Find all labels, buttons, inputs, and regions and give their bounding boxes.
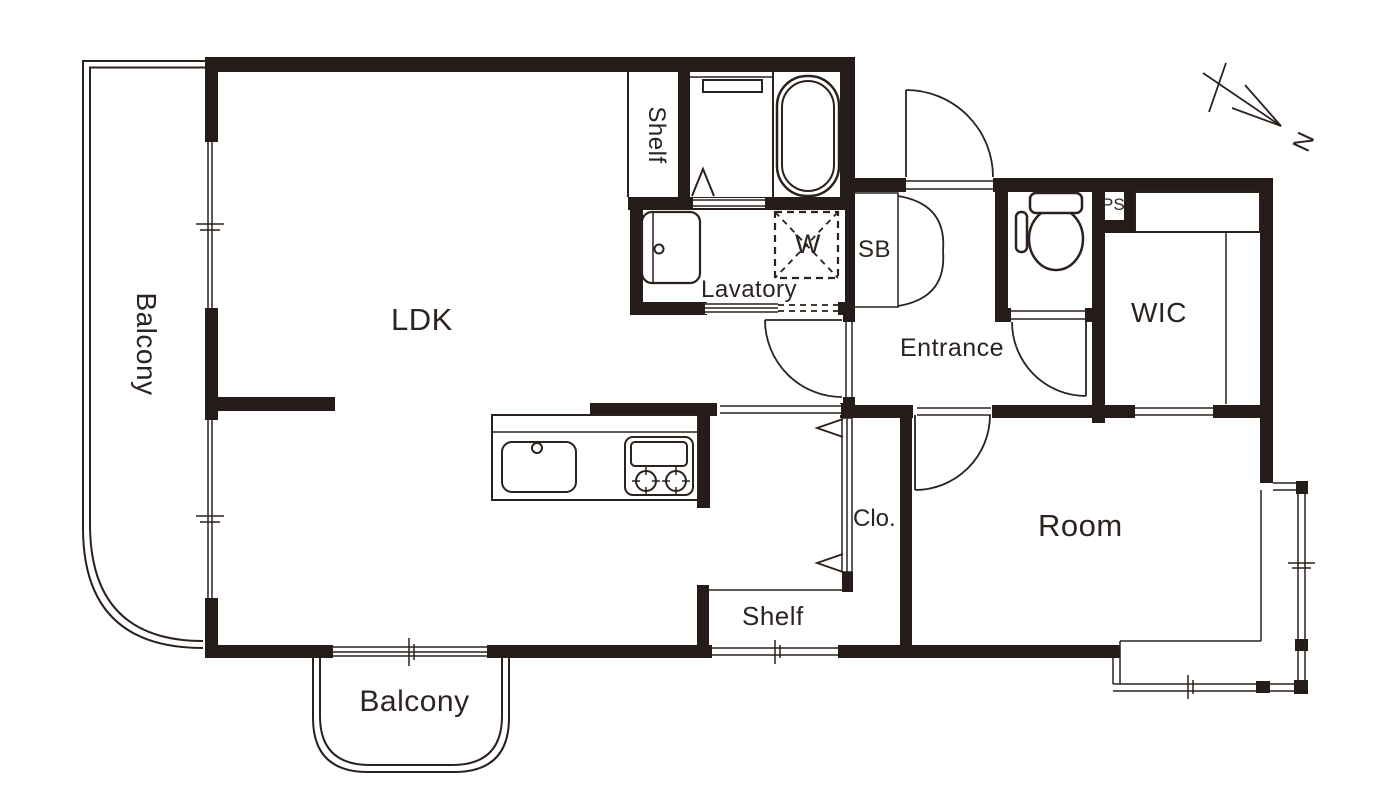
toilet-icon xyxy=(1016,193,1083,270)
room-label: Room xyxy=(1038,508,1123,544)
kitchen-counter-icon xyxy=(492,415,698,500)
room-door-threshold xyxy=(917,406,991,417)
floor-plan-geometry xyxy=(0,0,1392,800)
stove-icon xyxy=(625,437,693,495)
balcony-bottom-label: Balcony xyxy=(352,685,477,719)
ldk-passage-opening xyxy=(720,404,841,415)
closet-label: Clo. xyxy=(853,505,896,533)
wic-label: WIC xyxy=(1131,297,1187,329)
shower-door-icon xyxy=(692,169,714,196)
pipe-space-label: PS xyxy=(1102,195,1125,215)
front-door-threshold xyxy=(906,179,993,191)
left-window-upper xyxy=(196,142,224,308)
ldk-entrance-door-opening xyxy=(844,322,854,397)
wic-opening xyxy=(1135,406,1213,417)
shelf-top-label: Shelf xyxy=(642,79,670,191)
shower-shelf-icon xyxy=(690,77,772,92)
balcony-door-window xyxy=(333,638,487,666)
front-door xyxy=(906,90,993,177)
bathtub-icon xyxy=(777,76,839,196)
room-door xyxy=(915,415,990,490)
bay-window xyxy=(1113,483,1315,699)
shoebox-doors xyxy=(898,196,943,306)
shoebox-label: SB xyxy=(858,236,891,264)
ldk-label: LDK xyxy=(391,302,453,338)
doors xyxy=(705,90,1086,572)
washer-label: W xyxy=(795,229,821,260)
shelf-window xyxy=(712,640,838,664)
ldk-entrance-door xyxy=(765,320,842,397)
balcony-left-label: Balcony xyxy=(130,288,162,400)
walls xyxy=(205,57,1308,694)
balconies xyxy=(83,61,509,772)
floor-plan: LDK Balcony Balcony Shelf Lavatory W SB … xyxy=(0,0,1392,800)
lavatory-sliding-door xyxy=(705,303,840,314)
toilet-door xyxy=(1012,322,1086,396)
shelf-bottom-label: Shelf xyxy=(742,601,804,632)
closet-sliding-door xyxy=(817,418,852,572)
north-arrow-icon xyxy=(1203,63,1281,126)
entrance-label: Entrance xyxy=(900,334,1004,363)
kitchen-sink-icon xyxy=(502,442,576,492)
washbasin-icon xyxy=(642,212,700,283)
bathroom-door-threshold xyxy=(693,198,765,208)
toilet-door-threshold xyxy=(1011,309,1085,321)
left-window-lower xyxy=(196,420,224,598)
lavatory-label: Lavatory xyxy=(701,276,797,304)
